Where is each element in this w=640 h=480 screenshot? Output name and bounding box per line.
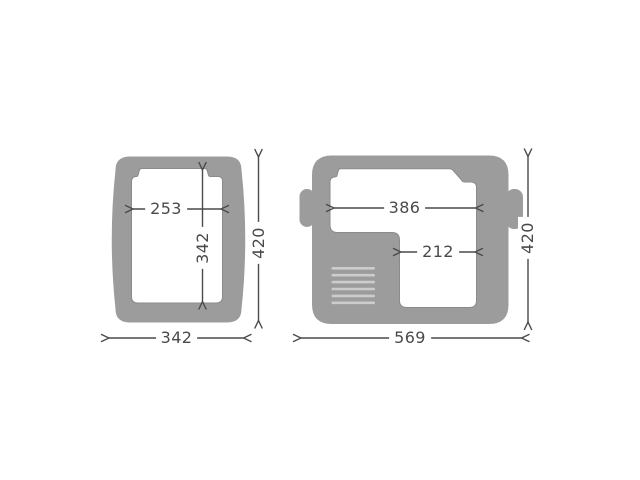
dim-label-compact-overall-width: 342 [156, 328, 198, 348]
cooler-dimension-diagram: 253 342 420 342 386 212 420 569 [0, 0, 640, 480]
vent-grille-line [332, 274, 376, 277]
dim-label-wide-cavity-width-lower: 212 [417, 242, 459, 262]
vent-grille-line [332, 267, 376, 270]
dim-label-wide-overall-width: 569 [389, 328, 431, 348]
vent-grille-line [332, 295, 376, 298]
vent-grille-line [332, 281, 376, 284]
dim-label-compact-overall-depth: 420 [249, 222, 269, 264]
dim-label-wide-overall-depth: 420 [518, 217, 538, 259]
dim-label-compact-cavity-width: 253 [145, 199, 187, 219]
vent-grille-line [332, 288, 376, 291]
dimension-drawing-canvas [0, 0, 640, 480]
vent-grille-line [332, 302, 376, 305]
dim-label-wide-cavity-width-upper: 386 [384, 198, 426, 218]
dim-label-compact-cavity-depth: 342 [193, 227, 213, 269]
